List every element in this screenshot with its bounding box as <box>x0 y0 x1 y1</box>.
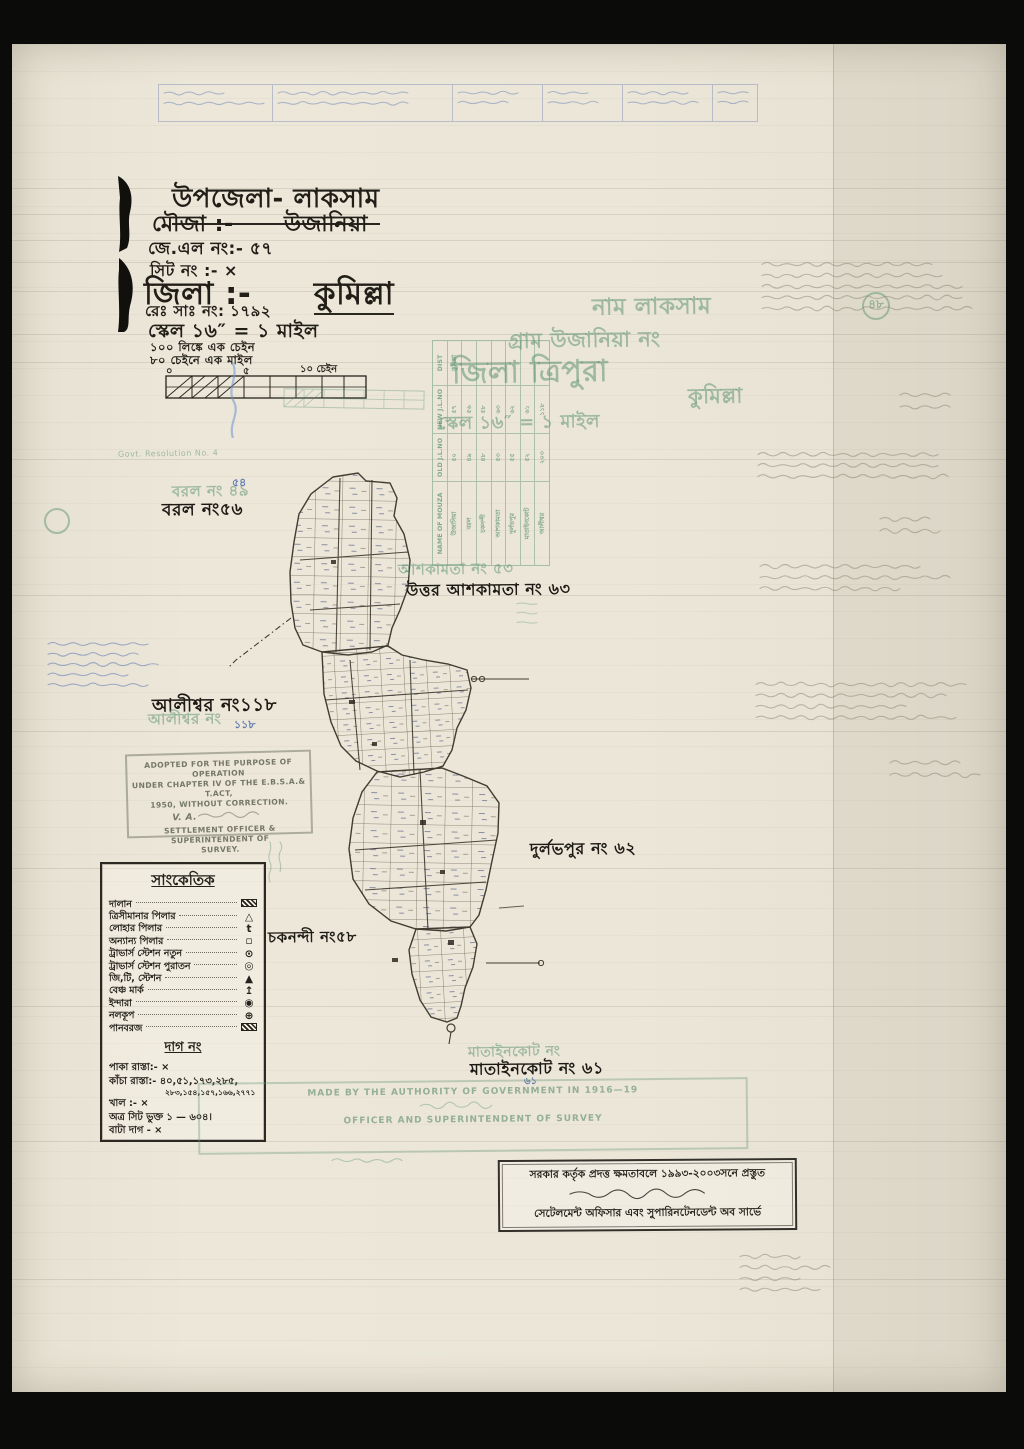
handwriting-squiggle <box>456 87 539 113</box>
legend-item: পানবরজ <box>109 1022 257 1034</box>
dag-no-title: দাগ নং <box>109 1038 257 1059</box>
blue-stream-mark <box>222 362 244 438</box>
ghost-header-line: কুমিল্লা <box>688 380 743 416</box>
scanned-map-sheet: নাম লাকসাম গ্রাম উজানিয়া নং ৪৮ জিলা ত্র… <box>0 0 1024 1449</box>
map-cluster-north <box>290 473 410 655</box>
handwriting-squiggle <box>276 87 449 113</box>
ghost-side-note <box>515 598 553 632</box>
ghost-bengali-line <box>330 1152 440 1171</box>
officer-signature <box>567 1181 727 1208</box>
handwriting-squiggle <box>546 87 619 113</box>
binding-mark <box>116 174 142 336</box>
alishwar-ghost-label: আলীশ্বর নং <box>148 707 222 733</box>
traverse-station-new-icon: ⊙ <box>241 949 257 959</box>
adopted-stamp: ADOPTED FOR THE PURPOSE OF OPERATION UND… <box>125 750 313 839</box>
col-dist: DIST <box>433 341 447 385</box>
tubewell-icon: ⊕ <box>241 1011 257 1021</box>
zila-value: কুমিল্লা <box>314 276 394 315</box>
betel-garden-hatch-icon <box>241 1023 257 1031</box>
pencil-note <box>760 258 995 319</box>
boundary-terminal-circle <box>447 1024 455 1032</box>
handwriting-squiggle <box>162 87 269 113</box>
iron-pillar-icon: t <box>241 924 257 934</box>
map-cluster-tail <box>409 927 477 1022</box>
legend-title: সাংকেতিক <box>109 869 257 894</box>
stamp-signature-initials: V. A. <box>172 813 197 824</box>
pencil-note <box>758 560 988 599</box>
ghost-circled-mark <box>44 508 70 534</box>
handwriting-squiggle <box>626 87 709 113</box>
ghost-header-line: নাম লাকসাম <box>592 287 712 328</box>
annotation-cell <box>453 84 543 122</box>
well-icon: ◉ <box>241 998 257 1008</box>
chakanandi-label: চকনন্দী নং৫৮ <box>268 926 357 952</box>
attestation-box: সরকার কর্তৃক প্রদত্ত ক্ষমতাবলে ১৯৯৩-২০০৩… <box>498 1158 797 1232</box>
pencil-signature <box>888 756 988 786</box>
annotation-cell <box>273 84 453 122</box>
annotation-cell <box>623 84 713 122</box>
mouza-label: মৌজা :- <box>152 212 234 237</box>
annotation-cell <box>543 84 623 122</box>
pencil-signature <box>898 388 968 418</box>
alishwar-blue-number: ১১৮ <box>234 716 255 735</box>
pencil-note <box>756 448 996 487</box>
dag-line: পাকা রাস্তা:- × <box>109 1061 257 1075</box>
mouza-value: উজানিয়া <box>284 212 368 237</box>
blue-tally-note <box>46 638 161 695</box>
traverse-station-old-icon: ◎ <box>241 961 257 971</box>
pencil-note <box>738 1250 843 1300</box>
annotation-cell <box>713 84 758 122</box>
pencil-signature <box>878 512 973 542</box>
col-new-jl-no: NEW J.L.NO <box>433 385 447 433</box>
pencil-note <box>754 678 986 728</box>
top-annotation-row <box>158 84 758 122</box>
boundary-pillar-icon: △ <box>241 912 257 922</box>
dashed-boundary-line <box>228 618 291 668</box>
ghost-scale-bar <box>282 385 432 414</box>
stamp-signature-squiggle <box>418 1096 528 1115</box>
made-by-stamp: MADE BY THE AUTHORITY OF GOVERNMENT IN 1… <box>198 1077 749 1155</box>
map-cluster-middle <box>322 646 471 777</box>
benchmark-icon: ↥ <box>241 986 257 996</box>
annotation-cell <box>158 84 273 122</box>
gt-station-icon: ▲ <box>241 974 257 984</box>
other-pillar-icon: ▫ <box>241 936 257 946</box>
barol-blue-number: ৫৪ <box>232 474 246 493</box>
handwriting-squiggle <box>716 87 754 112</box>
barol-label: বরল নং৫৬ <box>162 497 243 526</box>
attestation-line-2: সেটেলমেন্ট অফিসার এবং সুপারিনটেনডেন্ট অব… <box>500 1205 795 1224</box>
building-hatch-icon <box>241 899 257 907</box>
durlabhpur-label: দুর্লভপুর নং ৬২ <box>530 835 637 863</box>
